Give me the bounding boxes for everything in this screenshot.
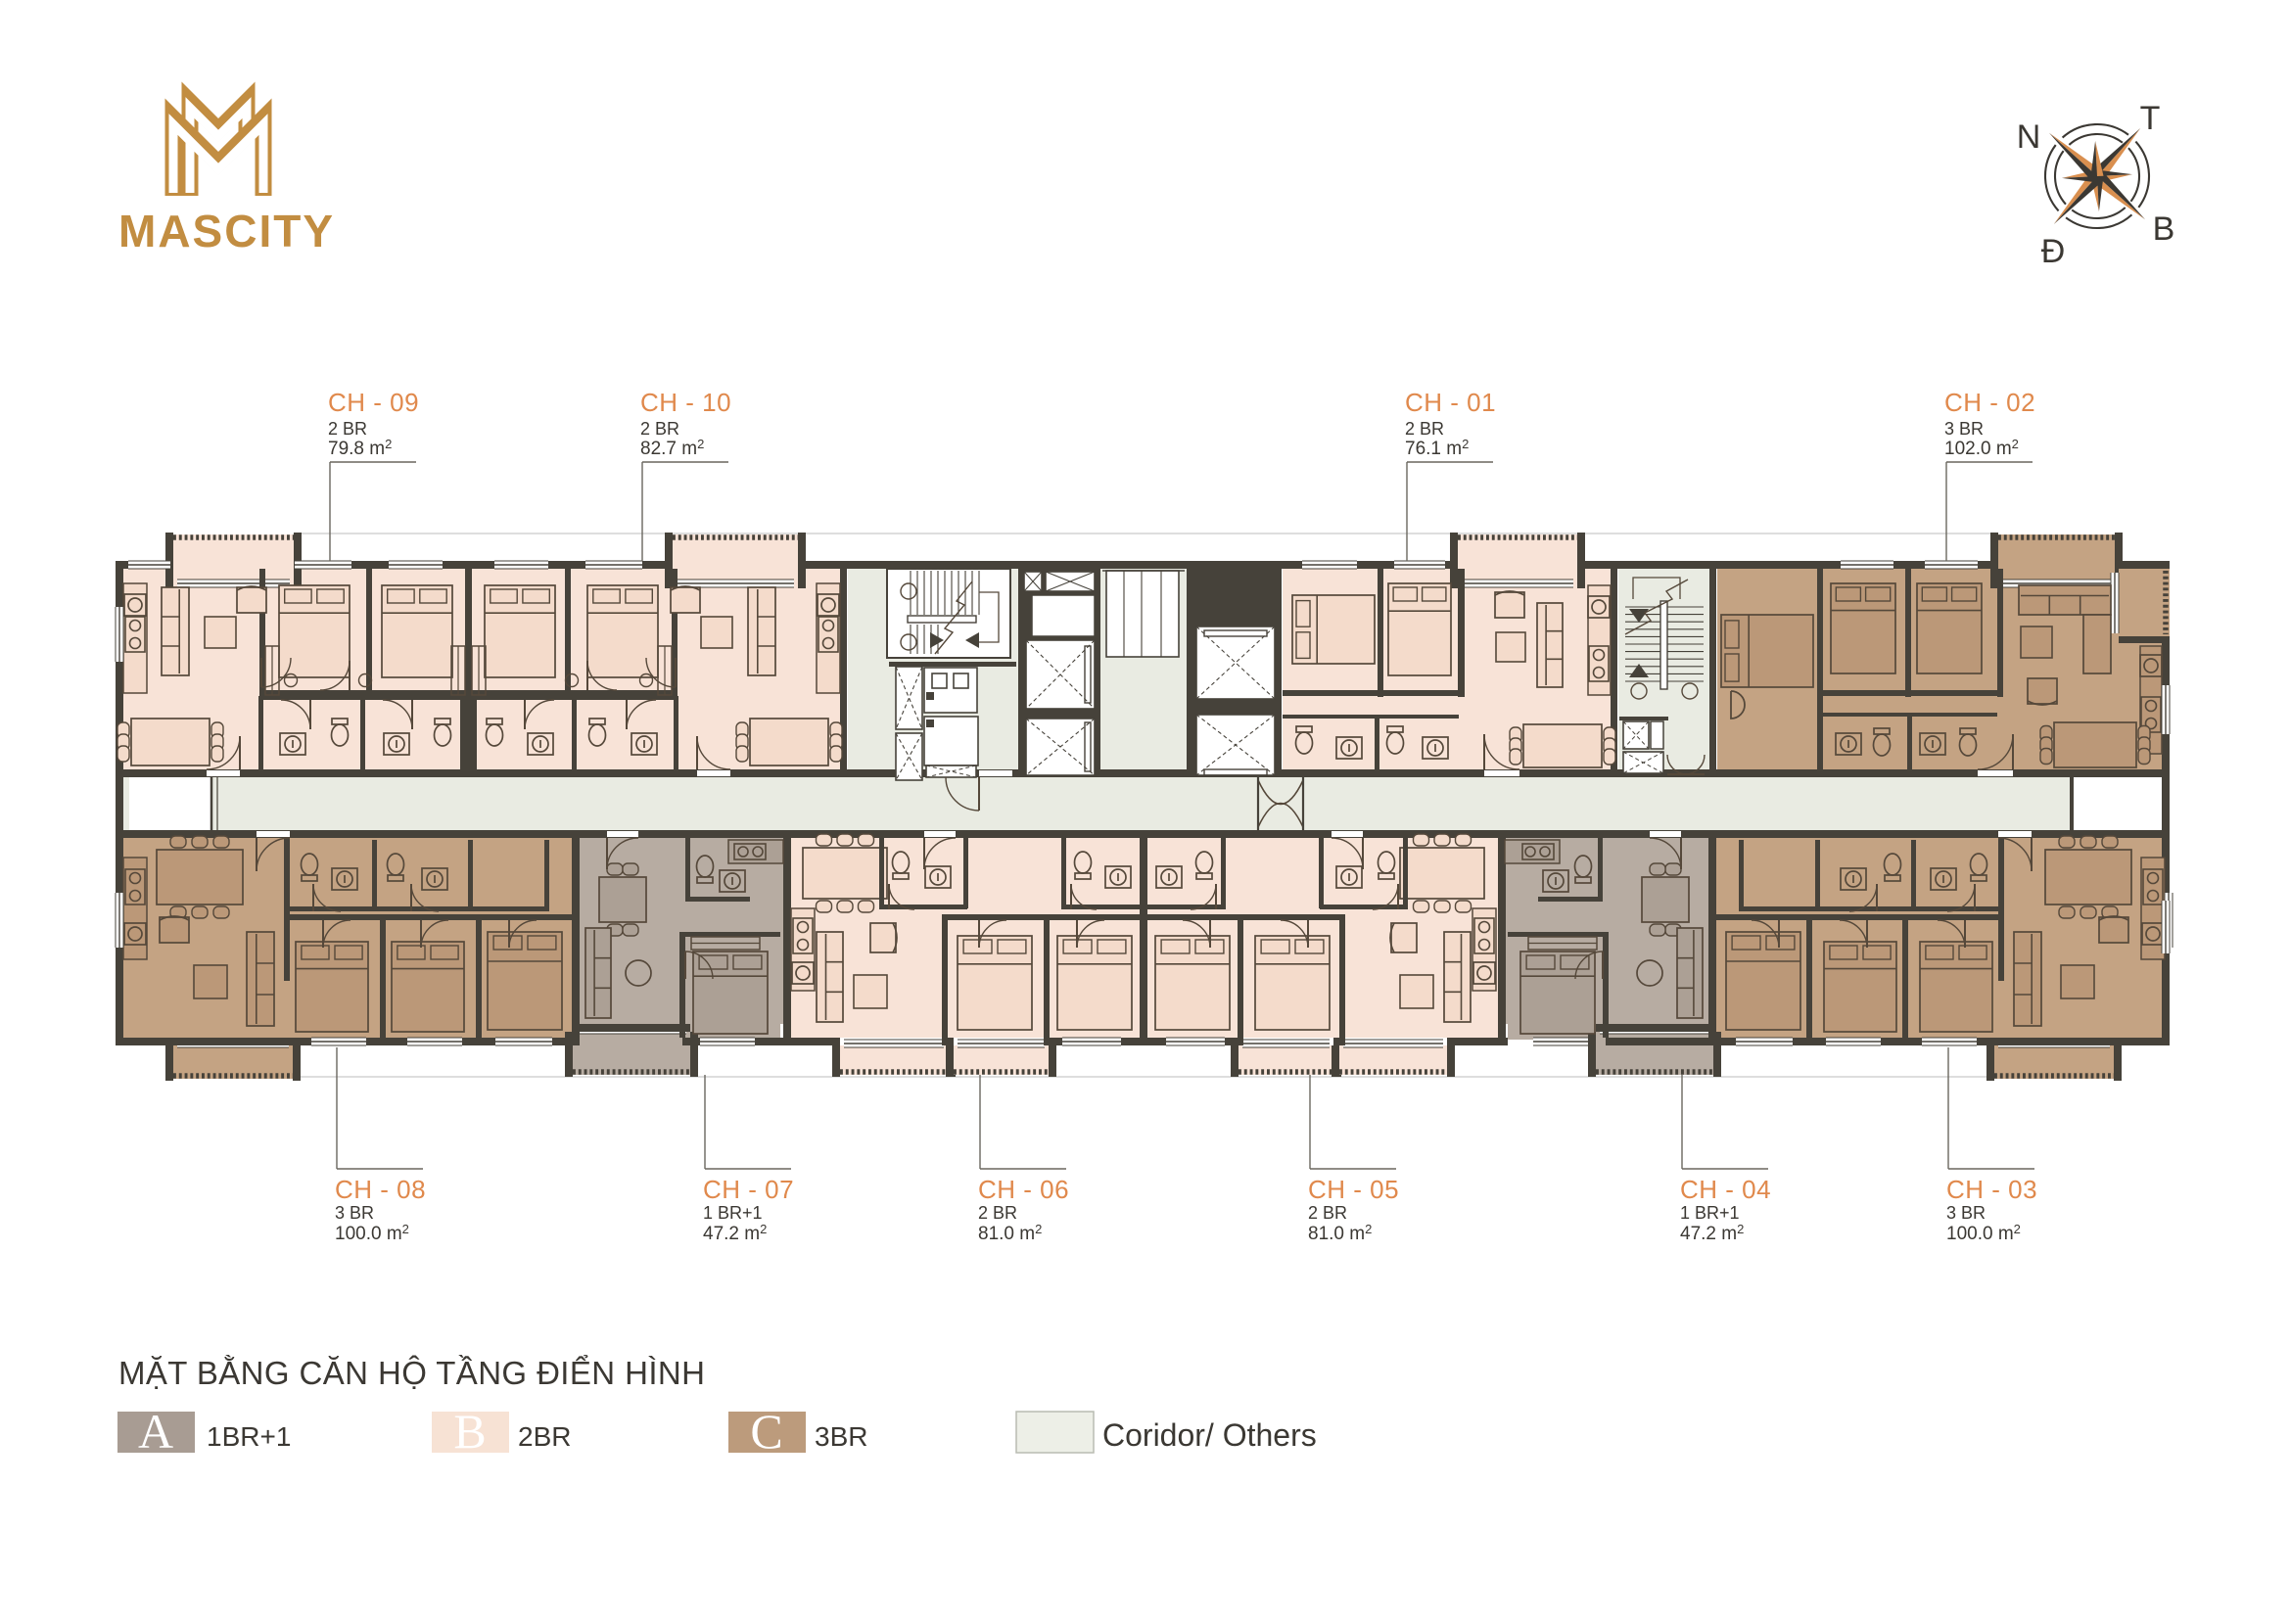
svg-text:81.0 m2: 81.0 m2 <box>1308 1222 1372 1244</box>
svg-text:CH - 10: CH - 10 <box>640 388 731 417</box>
svg-text:MẶT BẰNG CĂN HỘ TẦNG ĐIỂN HÌNH: MẶT BẰNG CĂN HỘ TẦNG ĐIỂN HÌNH <box>118 1355 705 1391</box>
svg-text:N: N <box>2017 118 2041 156</box>
svg-text:CH - 09: CH - 09 <box>328 388 419 417</box>
svg-text:T: T <box>2140 100 2161 137</box>
svg-text:3 BR: 3 BR <box>335 1203 374 1223</box>
svg-text:2 BR: 2 BR <box>1405 419 1444 439</box>
svg-text:CH - 06: CH - 06 <box>978 1175 1069 1204</box>
svg-text:1 BR+1: 1 BR+1 <box>703 1203 763 1223</box>
svg-text:76.1 m2: 76.1 m2 <box>1405 437 1469 459</box>
svg-text:100.0 m2: 100.0 m2 <box>335 1222 409 1244</box>
svg-text:CH - 04: CH - 04 <box>1680 1175 1771 1204</box>
svg-text:CH - 08: CH - 08 <box>335 1175 426 1204</box>
svg-text:MASCITY: MASCITY <box>118 206 335 256</box>
svg-text:79.8 m2: 79.8 m2 <box>328 437 392 459</box>
svg-text:CH - 05: CH - 05 <box>1308 1175 1399 1204</box>
svg-text:2 BR: 2 BR <box>1308 1203 1347 1223</box>
svg-text:B: B <box>2153 210 2175 248</box>
svg-text:Coridor/ Others: Coridor/ Others <box>1102 1417 1317 1453</box>
svg-text:1BR+1: 1BR+1 <box>207 1421 291 1452</box>
svg-text:C: C <box>750 1404 782 1459</box>
svg-text:3 BR: 3 BR <box>1944 419 1984 439</box>
svg-text:47.2 m2: 47.2 m2 <box>1680 1222 1744 1244</box>
svg-text:Đ: Đ <box>2041 233 2066 270</box>
svg-text:102.0 m2: 102.0 m2 <box>1944 437 2019 459</box>
svg-text:2BR: 2BR <box>518 1421 571 1452</box>
svg-text:3 BR: 3 BR <box>1946 1203 1986 1223</box>
svg-text:2 BR: 2 BR <box>328 419 367 439</box>
svg-text:100.0 m2: 100.0 m2 <box>1946 1222 2021 1244</box>
svg-text:CH - 07: CH - 07 <box>703 1175 794 1204</box>
svg-text:CH - 01: CH - 01 <box>1405 388 1496 417</box>
svg-text:47.2 m2: 47.2 m2 <box>703 1222 767 1244</box>
svg-text:3BR: 3BR <box>815 1421 867 1452</box>
svg-text:81.0 m2: 81.0 m2 <box>978 1222 1042 1244</box>
svg-text:A: A <box>138 1404 173 1459</box>
svg-text:82.7 m2: 82.7 m2 <box>640 437 704 459</box>
svg-text:1 BR+1: 1 BR+1 <box>1680 1203 1740 1223</box>
svg-text:CH - 03: CH - 03 <box>1946 1175 2037 1204</box>
svg-text:2 BR: 2 BR <box>640 419 679 439</box>
svg-text:2 BR: 2 BR <box>978 1203 1017 1223</box>
svg-text:B: B <box>453 1404 486 1459</box>
svg-text:CH - 02: CH - 02 <box>1944 388 2035 417</box>
